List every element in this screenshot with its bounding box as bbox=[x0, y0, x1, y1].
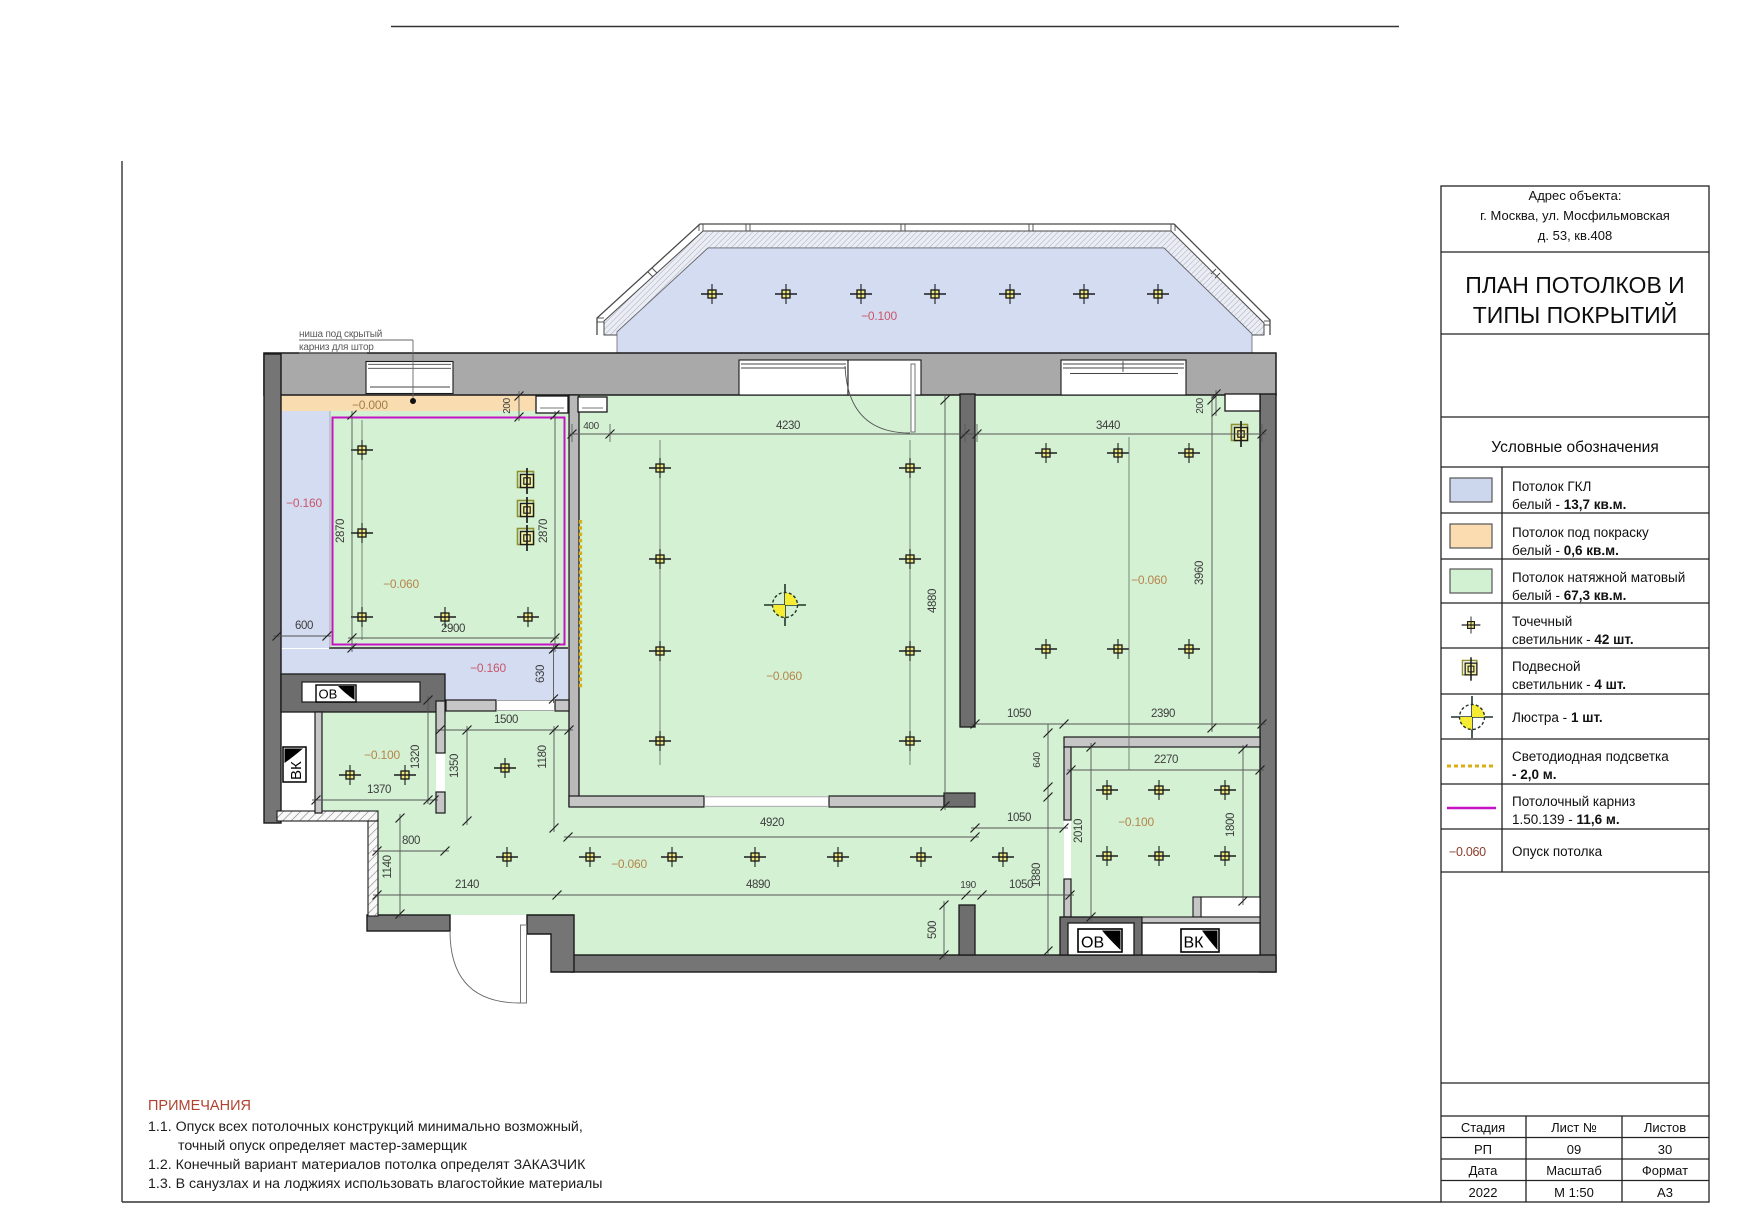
svg-text:800: 800 bbox=[402, 835, 420, 847]
svg-text:640: 640 bbox=[1032, 751, 1043, 767]
svg-text:ниша под скрытый: ниша под скрытый bbox=[299, 329, 382, 340]
svg-text:4890: 4890 bbox=[746, 879, 770, 891]
svg-text:2270: 2270 bbox=[1154, 754, 1178, 766]
svg-text:Точечный: Точечный bbox=[1512, 614, 1572, 629]
svg-text:А3: А3 bbox=[1657, 1185, 1673, 1200]
svg-text:- 2,0 м.: - 2,0 м. bbox=[1512, 767, 1557, 782]
svg-text:1350: 1350 bbox=[449, 754, 461, 778]
svg-text:1880: 1880 bbox=[1031, 863, 1043, 887]
svg-text:1050: 1050 bbox=[1007, 708, 1031, 720]
svg-text:2022: 2022 bbox=[1469, 1185, 1498, 1200]
svg-text:ОВ: ОВ bbox=[319, 687, 338, 702]
svg-text:−0.160: −0.160 bbox=[470, 661, 506, 675]
svg-text:−0.060: −0.060 bbox=[611, 857, 647, 871]
svg-text:светильник - 42 шт.: светильник - 42 шт. bbox=[1512, 632, 1634, 647]
svg-text:−0.000: −0.000 bbox=[352, 398, 388, 412]
svg-text:Стадия: Стадия bbox=[1461, 1120, 1505, 1135]
svg-text:1.3. В санузлах и на лоджиях и: 1.3. В санузлах и на лоджиях использоват… bbox=[148, 1176, 603, 1192]
svg-text:09: 09 bbox=[1567, 1142, 1581, 1157]
svg-text:1.50.139 - 11,6 м.: 1.50.139 - 11,6 м. bbox=[1512, 812, 1620, 827]
svg-text:Потолок под покраску: Потолок под покраску bbox=[1512, 525, 1649, 540]
svg-text:2390: 2390 bbox=[1151, 708, 1175, 720]
svg-text:630: 630 bbox=[535, 665, 547, 683]
svg-text:1320: 1320 bbox=[410, 745, 422, 769]
svg-text:400: 400 bbox=[583, 421, 599, 432]
svg-text:−0.100: −0.100 bbox=[364, 748, 400, 762]
svg-text:карниз для штор: карниз для штор bbox=[299, 342, 374, 353]
svg-text:30: 30 bbox=[1658, 1142, 1672, 1157]
svg-text:2900: 2900 bbox=[441, 623, 465, 635]
svg-text:Дата: Дата bbox=[1469, 1163, 1499, 1178]
svg-text:1140: 1140 bbox=[382, 855, 394, 878]
svg-text:1.2. Конечный вариант материал: 1.2. Конечный вариант материалов потолка… bbox=[148, 1157, 586, 1173]
svg-text:200: 200 bbox=[502, 397, 513, 413]
svg-text:Люстра - 1 шт.: Люстра - 1 шт. bbox=[1512, 710, 1603, 725]
svg-text:Потолок ГКЛ: Потолок ГКЛ bbox=[1512, 479, 1591, 494]
svg-text:−0.100: −0.100 bbox=[861, 309, 897, 323]
svg-text:1050: 1050 bbox=[1007, 812, 1031, 824]
svg-text:2870: 2870 bbox=[335, 519, 347, 543]
svg-text:Подвесной: Подвесной bbox=[1512, 659, 1581, 674]
svg-text:белый - 67,3 кв.м.: белый - 67,3 кв.м. bbox=[1512, 588, 1626, 603]
svg-text:−0.100: −0.100 bbox=[1118, 815, 1154, 829]
svg-text:д. 53, кв.408: д. 53, кв.408 bbox=[1538, 228, 1612, 243]
svg-text:г. Москва, ул. Мосфильмовская: г. Москва, ул. Мосфильмовская bbox=[1480, 208, 1670, 223]
svg-text:ВК: ВК bbox=[1184, 935, 1205, 952]
svg-text:1370: 1370 bbox=[367, 784, 391, 796]
svg-text:1500: 1500 bbox=[494, 714, 518, 726]
svg-text:−0.060: −0.060 bbox=[1449, 845, 1486, 859]
svg-text:2140: 2140 bbox=[455, 879, 479, 891]
svg-text:500: 500 bbox=[927, 921, 939, 939]
svg-text:3960: 3960 bbox=[1194, 561, 1206, 585]
svg-text:−0.060: −0.060 bbox=[383, 577, 419, 591]
svg-text:Потолок натяжной матовый: Потолок натяжной матовый bbox=[1512, 570, 1685, 585]
svg-text:точный опуск определяет мастер: точный опуск определяет мастер-замерщик bbox=[178, 1138, 468, 1154]
svg-text:ПРИМЕЧАНИЯ: ПРИМЕЧАНИЯ bbox=[148, 1098, 251, 1114]
svg-text:1180: 1180 bbox=[537, 745, 549, 768]
svg-text:−0.060: −0.060 bbox=[766, 669, 802, 683]
svg-text:ВК: ВК bbox=[288, 761, 305, 780]
svg-text:белый - 13,7 кв.м.: белый - 13,7 кв.м. bbox=[1512, 497, 1626, 512]
svg-text:Условные обозначения: Условные обозначения bbox=[1491, 439, 1658, 456]
svg-text:Опуск потолка: Опуск потолка bbox=[1512, 844, 1603, 859]
svg-text:ПЛАН ПОТОЛКОВ И: ПЛАН ПОТОЛКОВ И bbox=[1465, 272, 1684, 298]
svg-text:190: 190 bbox=[960, 880, 976, 891]
svg-text:светильник - 4 шт.: светильник - 4 шт. bbox=[1512, 677, 1626, 692]
svg-text:2870: 2870 bbox=[538, 519, 550, 543]
svg-text:200: 200 bbox=[1195, 397, 1206, 413]
svg-text:1050: 1050 bbox=[1009, 879, 1033, 891]
svg-text:−0.160: −0.160 bbox=[286, 496, 322, 510]
svg-text:4880: 4880 bbox=[927, 589, 939, 613]
svg-text:ОВ: ОВ bbox=[1081, 935, 1104, 952]
svg-text:Масштаб: Масштаб bbox=[1546, 1163, 1602, 1178]
svg-text:1.1. Опуск всех потолочных кон: 1.1. Опуск всех потолочных конструкций м… bbox=[148, 1119, 583, 1135]
svg-text:М 1:50: М 1:50 bbox=[1554, 1185, 1594, 1200]
svg-text:Потолочный карниз: Потолочный карниз bbox=[1512, 794, 1635, 809]
svg-text:Листов: Листов bbox=[1644, 1120, 1686, 1135]
svg-text:Светодиодная подсветка: Светодиодная подсветка bbox=[1512, 749, 1669, 764]
svg-text:1800: 1800 bbox=[1225, 813, 1237, 837]
svg-text:Адрес объекта:: Адрес объекта: bbox=[1529, 188, 1622, 203]
svg-text:4920: 4920 bbox=[760, 817, 784, 829]
svg-text:Формат: Формат bbox=[1642, 1163, 1688, 1178]
svg-text:3440: 3440 bbox=[1096, 420, 1120, 432]
svg-text:2010: 2010 bbox=[1073, 819, 1085, 843]
svg-text:ТИПЫ ПОКРЫТИЙ: ТИПЫ ПОКРЫТИЙ bbox=[1473, 301, 1678, 328]
svg-text:600: 600 bbox=[295, 620, 313, 632]
svg-text:4230: 4230 bbox=[776, 420, 800, 432]
svg-text:Лист №: Лист № bbox=[1551, 1120, 1597, 1135]
svg-text:−0.060: −0.060 bbox=[1131, 573, 1167, 587]
svg-text:белый - 0,6 кв.м.: белый - 0,6 кв.м. bbox=[1512, 543, 1619, 558]
svg-text:РП: РП bbox=[1474, 1142, 1492, 1157]
